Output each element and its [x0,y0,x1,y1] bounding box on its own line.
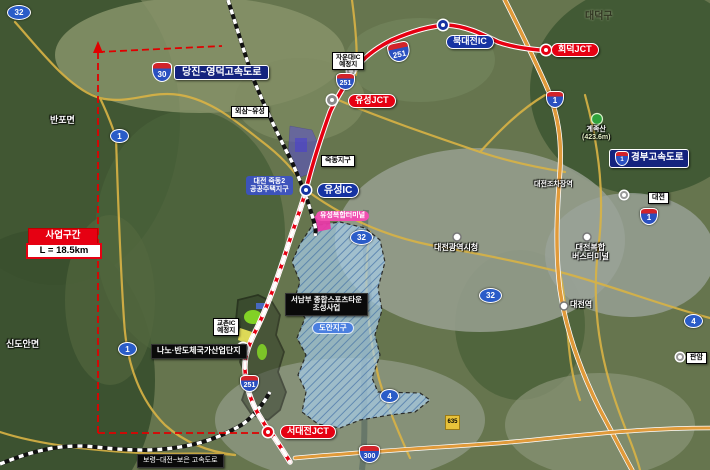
daejeon-ic-dot [620,191,628,199]
national-route-shield-4: 4 [684,314,703,328]
gyeongbu-expressway-badge: 1 경부고속도로 [609,149,689,168]
national-route-shield-32: 32 [350,230,373,245]
yuseong-ic-badge: 유성IC [317,183,359,198]
panam-ic-label: 판암 [686,352,707,364]
project-section-length: L = 18.5km [26,243,102,259]
local-route-shield-635: 635 [445,415,460,430]
dangjin-yeongdeok-expressway-badge: 30 당진~영덕고속도로 [152,62,269,82]
doan-district-badge: 도안지구 [312,322,354,334]
national-route-shield-1: 1 [118,342,137,356]
city-hall-label: 대전광역시청 [434,244,478,253]
national-route-shield-32: 32 [479,288,502,303]
yuseong-jct-badge: 유성JCT [348,94,396,108]
gyochon-ic-planned-label: 교촌IC 예정지 [213,318,239,336]
hoedeok-jct-badge: 회덕JCT [551,43,599,57]
yuseong-jct-dot [327,95,337,105]
daedeok-gu-label: 대덕구 [585,11,613,22]
seodaejeon-jct-badge: 서대전JCT [280,425,336,439]
jaundae-ic-planned-label: 자운대IC 예정지 [332,52,364,70]
route-shield-30: 30 [152,62,172,82]
seodaejeon-jct-dot [263,427,273,437]
daejeon-station-label: 대전역 [570,301,592,310]
jochajang-station-label: 대전조차장역 [534,181,573,189]
jukdong-district-label: 죽동지구 [321,155,355,167]
satellite-project-map: 251 251 251 300 1 1 32 1 1 32 32 4 4 635… [0,0,710,470]
dangjin-yeongdeok-label: 당진~영덕고속도로 [174,65,269,80]
yuseong-terminal-badge: 유성복합터미널 [316,211,369,221]
sindoan-myeon-label: 신도안면 [6,340,39,350]
jukdong2-housing-district-badge: 대전 죽동2 공공주택지구 [246,176,293,195]
oesam-yuseong-label: 외삼~유성 [231,106,269,118]
daejeon-ic-label: 대전 [648,192,669,204]
bukdaejeon-ic-dot [438,20,448,30]
boryeong-boeun-expressway-label: 보령~대전~보은 고속도로 [137,454,224,468]
nano-semiconductor-complex-label: 나노·반도체국가산업단지 [151,344,247,359]
bus-terminal-label: 대전복합 버스터미널 [572,244,609,262]
national-route-shield-4: 4 [380,389,399,403]
sports-town-project-label: 서남부 종합스포츠타운 조성사업 [285,293,368,316]
gyeongbu-label: 경부고속도로 [631,153,683,163]
route-shield-1: 1 [615,151,629,166]
panam-ic-dot [676,353,684,361]
national-route-shield-1: 1 [110,129,129,143]
national-route-shield-32: 32 [7,5,31,20]
bukdaejeon-ic-badge: 북대전IC [446,35,494,49]
banpo-myeon-label: 반포면 [50,116,75,126]
gyejoksan-label: 계족산 (423.6m) [582,126,610,141]
project-section-title: 사업구간 [28,228,98,244]
hoedeok-jct-dot [541,45,551,55]
yuseong-ic-dot [301,185,311,195]
